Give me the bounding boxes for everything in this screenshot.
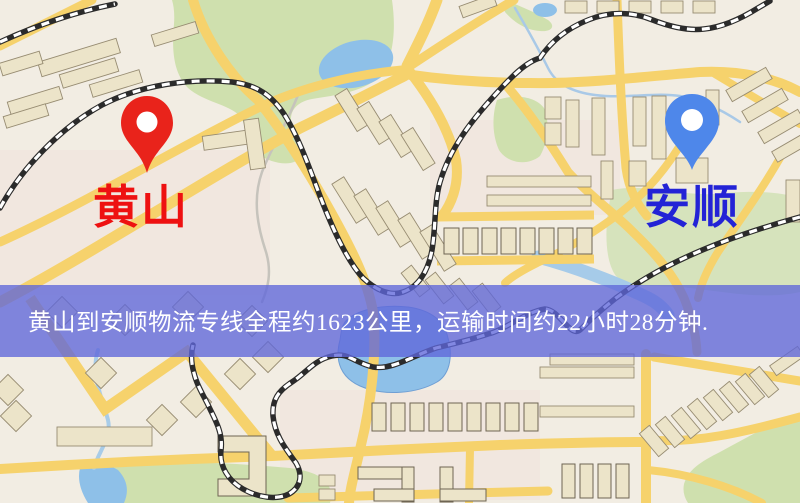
destination-pin-hole xyxy=(681,109,703,131)
route-banner-text: 黄山到安顺物流专线全程约1623公里，运输时间约22小时28分钟. xyxy=(28,309,708,336)
route-map-image[interactable]: 黄山到安顺物流专线全程约1623公里，运输时间约22小时28分钟. 黄山 安顺 xyxy=(0,0,800,503)
origin-pin-hole xyxy=(137,112,158,133)
destination-label: 安顺 xyxy=(644,182,740,233)
route-banner: 黄山到安顺物流专线全程约1623公里，运输时间约22小时28分钟. xyxy=(0,285,800,357)
map-canvas: 黄山到安顺物流专线全程约1623公里，运输时间约22小时28分钟. 黄山 安顺 xyxy=(0,0,800,503)
origin-label: 黄山 xyxy=(93,182,189,233)
pond-small xyxy=(533,3,557,17)
